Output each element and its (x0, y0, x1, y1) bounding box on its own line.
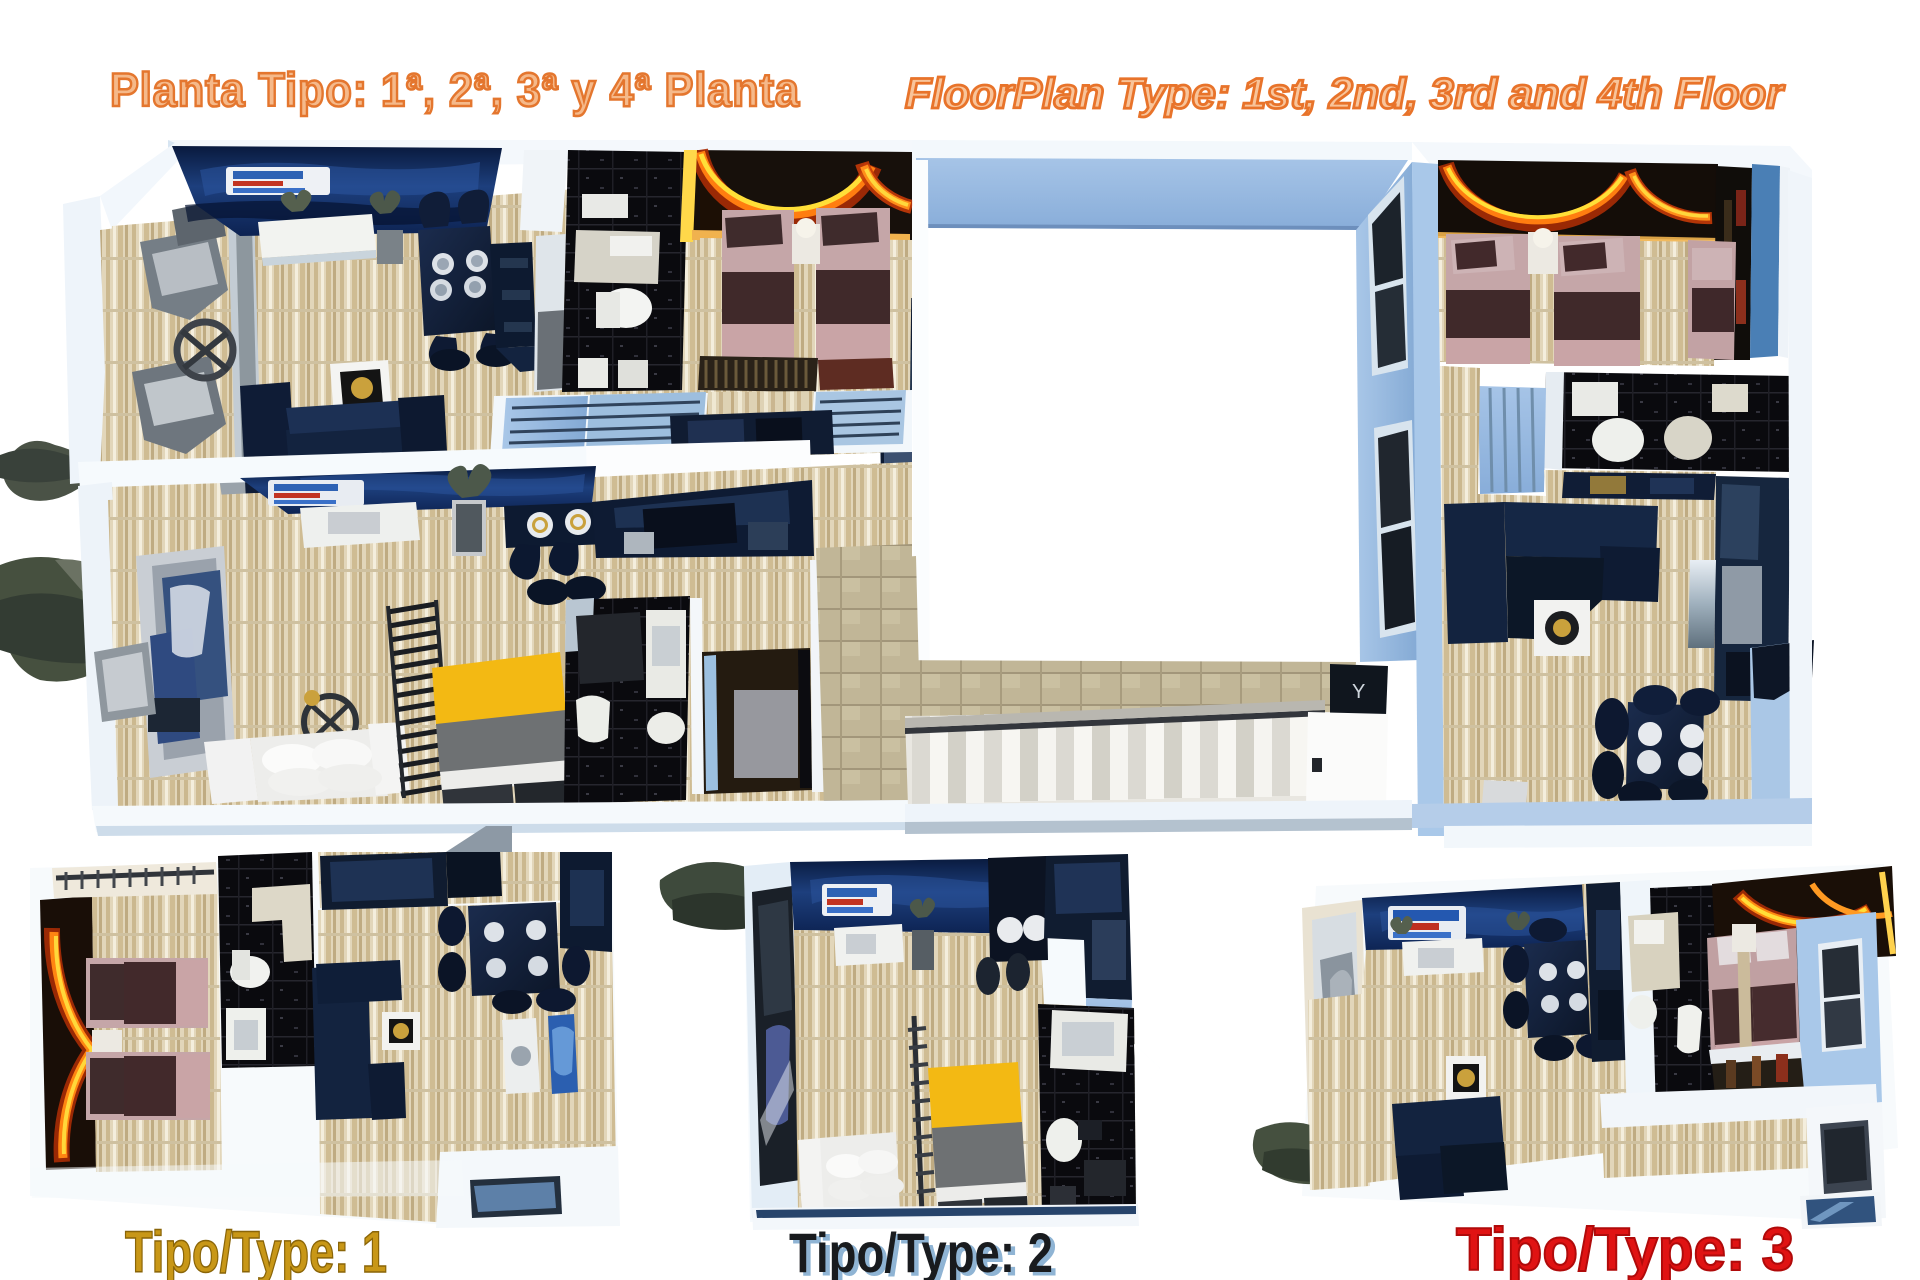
svg-text:Tipo/Type: 3: Tipo/Type: 3 (1456, 1216, 1794, 1280)
svg-text:FloorPlan Type: 1st, 2nd, 3rd: FloorPlan Type: 1st, 2nd, 3rd and 4th Fl… (905, 70, 1785, 118)
svg-text:Y: Y (1352, 681, 1365, 703)
svg-text:Tipo/Type: 2: Tipo/Type: 2 (789, 1221, 1053, 1280)
svg-text:Tipo/Type: 1: Tipo/Type: 1 (125, 1220, 387, 1280)
svg-text:Planta Tipo: 1ª, 2ª, 3ª y 4ª P: Planta Tipo: 1ª, 2ª, 3ª y 4ª Planta (110, 63, 800, 116)
